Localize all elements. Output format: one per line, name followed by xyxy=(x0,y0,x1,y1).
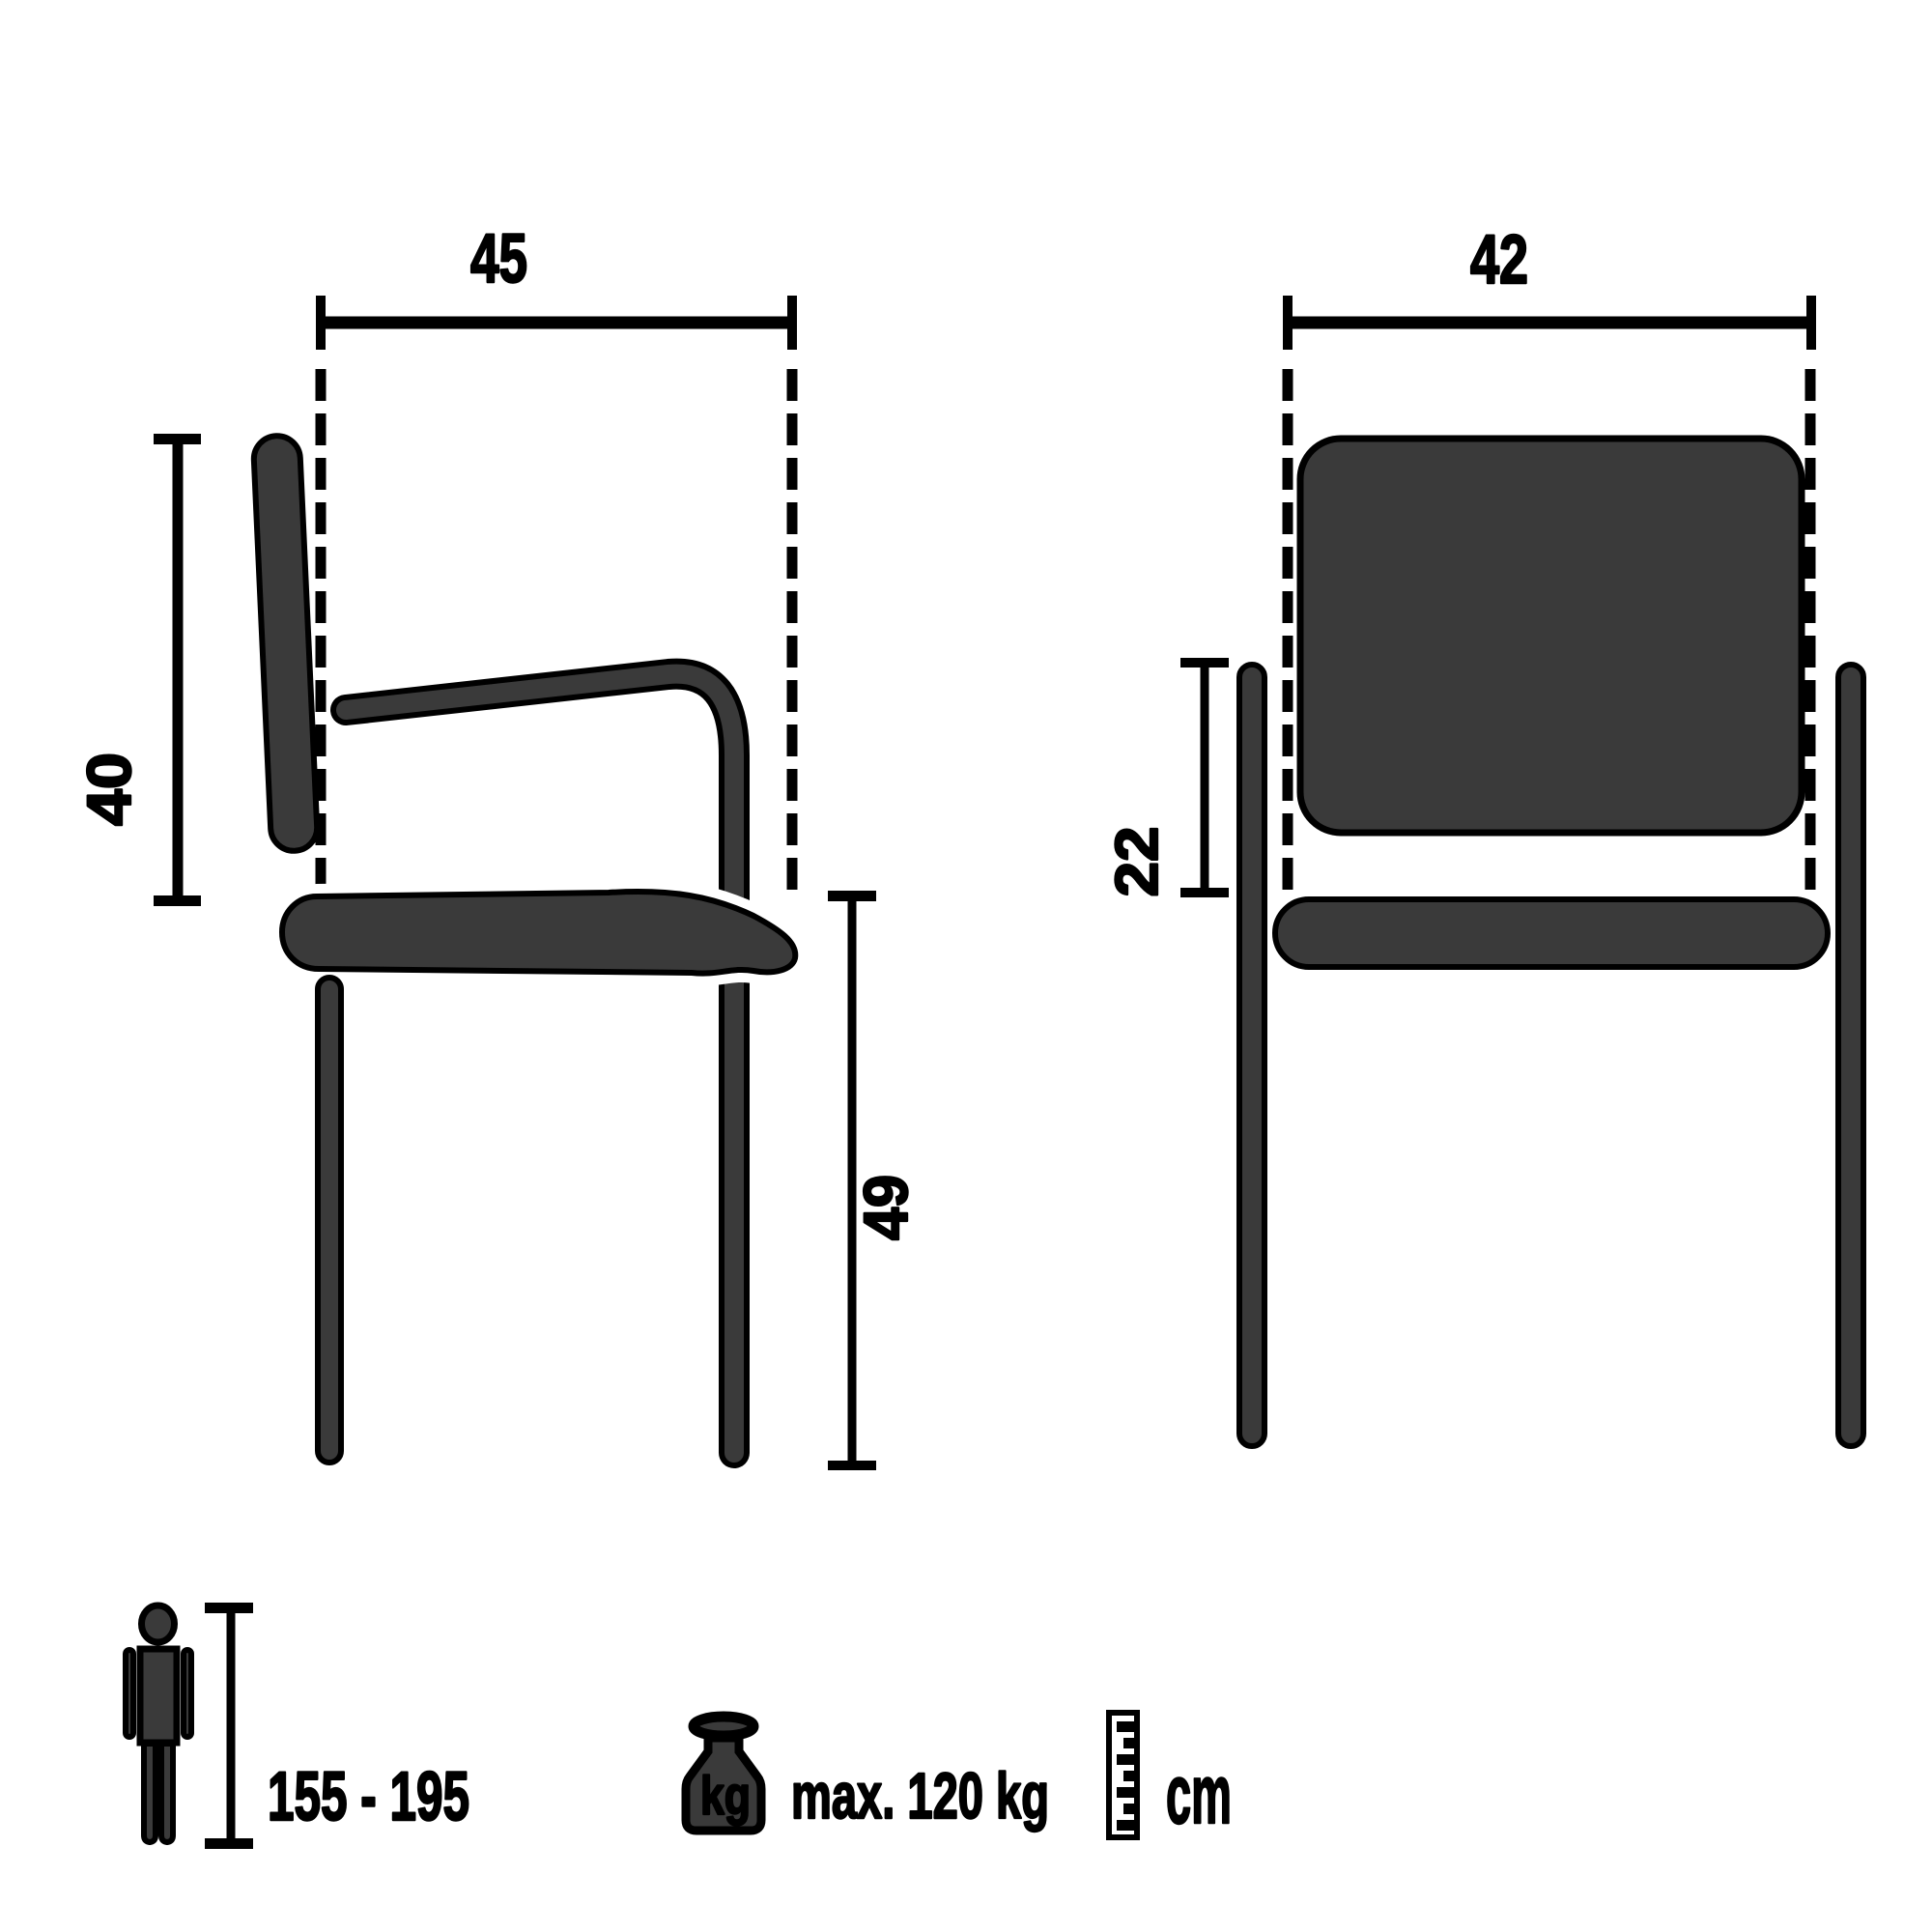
svg-text:49: 49 xyxy=(851,1175,921,1240)
svg-text:40: 40 xyxy=(74,753,144,826)
svg-text:max. 120 kg: max. 120 kg xyxy=(791,1760,1049,1833)
svg-text:22: 22 xyxy=(1104,827,1171,897)
svg-text:155 - 195: 155 - 195 xyxy=(268,1759,469,1835)
svg-text:42: 42 xyxy=(1470,222,1528,298)
svg-text:kg: kg xyxy=(700,1765,751,1826)
svg-text:45: 45 xyxy=(470,221,527,298)
svg-text:cm: cm xyxy=(1166,1748,1232,1841)
